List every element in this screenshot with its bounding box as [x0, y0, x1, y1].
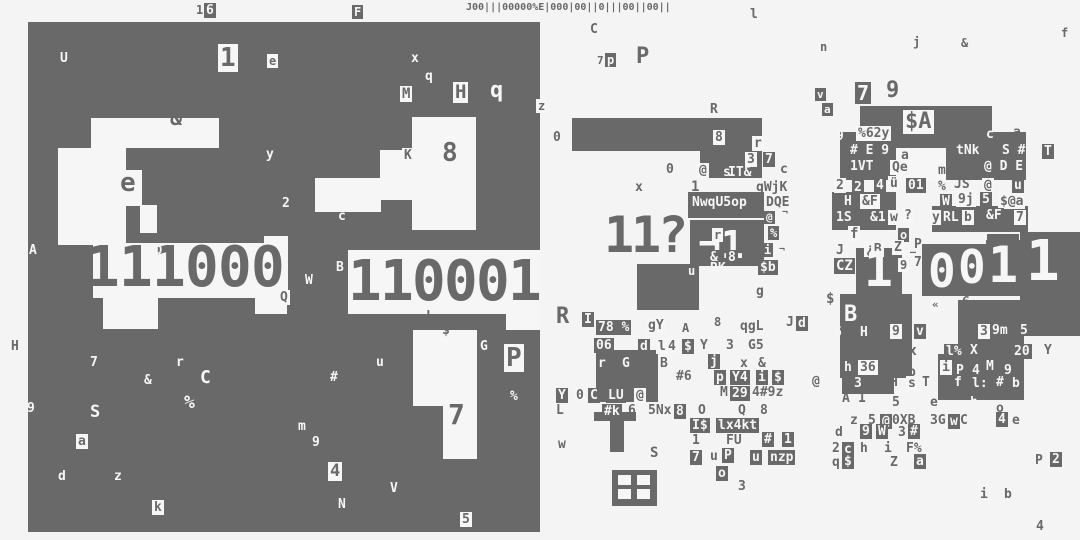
glyph: o	[902, 326, 910, 339]
glyph: 2	[852, 180, 864, 195]
glyph: #k	[602, 404, 622, 419]
glyph: W	[940, 194, 952, 209]
glyph: q	[490, 80, 503, 102]
glyph: 7	[446, 400, 467, 430]
glyph: i	[940, 360, 952, 375]
glyph: 2	[832, 442, 840, 455]
glyph: c	[338, 210, 346, 223]
glyph: B	[844, 304, 857, 326]
glyph: D	[155, 244, 162, 256]
window-pane	[637, 475, 650, 485]
glyph: y	[266, 148, 274, 161]
glyph: a	[1013, 126, 1021, 139]
glyph: e	[267, 54, 278, 68]
glyph: q	[425, 70, 433, 83]
big-digit: 1	[119, 240, 153, 296]
glyph: 9	[27, 402, 35, 415]
glyph: H	[890, 376, 898, 389]
glyph: C	[960, 414, 968, 427]
glyph: @ D E	[984, 160, 1023, 173]
glyph: 9j	[956, 192, 976, 207]
glyph: 78 %	[596, 320, 631, 335]
glyph: 3	[852, 376, 864, 391]
glyph: my	[938, 164, 954, 177]
big-digit: 0	[251, 240, 285, 296]
glyph: 7	[690, 450, 702, 465]
glyph: 36	[858, 360, 878, 375]
glyph: 7	[763, 152, 775, 167]
glyph: j	[708, 354, 720, 369]
glyph: 4	[874, 178, 886, 193]
glyph: R	[710, 103, 718, 116]
glyph: 4	[666, 339, 678, 354]
glyph: f	[1061, 27, 1068, 39]
glyph: $	[682, 339, 694, 354]
glyph: 1VT	[850, 160, 873, 173]
glyph: V	[390, 482, 398, 495]
glyph: CZ	[834, 258, 855, 274]
glyph: #	[996, 376, 1004, 389]
glyph: &	[758, 357, 766, 370]
glyph: $A	[903, 110, 934, 134]
glyph: Q	[278, 290, 290, 305]
glyph: h	[970, 396, 978, 409]
glyph: l:	[970, 376, 990, 391]
glyph: 9	[890, 324, 902, 339]
glyph: e	[120, 170, 136, 196]
glyph: 5	[892, 396, 900, 409]
glyph: 8	[726, 250, 738, 265]
glyph: i	[756, 370, 768, 385]
window-pane	[637, 489, 650, 499]
glyph: S	[650, 446, 658, 460]
glyph: W	[876, 424, 888, 439]
glyph: 3	[898, 426, 906, 439]
big-digit: 1	[604, 210, 634, 260]
glyph: S #	[1002, 144, 1025, 157]
glyph: G	[622, 357, 630, 370]
glyph: 4	[1036, 520, 1044, 533]
glyph: RK	[710, 262, 726, 275]
glyph: r	[598, 357, 606, 370]
glyph: O	[698, 404, 706, 417]
glyph: 0	[553, 131, 561, 144]
glyph: 2	[1050, 452, 1062, 467]
paper-blob	[91, 118, 219, 148]
glyph: $	[772, 370, 784, 385]
glyph: %	[938, 180, 946, 193]
glyph: I	[582, 312, 594, 327]
glyph: N	[338, 498, 346, 511]
glyph: 1	[218, 44, 238, 72]
glyph: p	[714, 370, 726, 385]
glyph: a	[76, 434, 88, 449]
ink-block	[572, 118, 700, 151]
glyph: 5	[980, 192, 992, 207]
big-digit: 0	[218, 240, 252, 296]
glyph: Q	[738, 404, 746, 417]
glyph: J	[786, 316, 794, 329]
glyph: Y	[1044, 344, 1052, 357]
glyph: gWjK	[756, 181, 787, 194]
glyph: ü	[888, 176, 900, 191]
glyph: Y	[700, 339, 708, 352]
glyph: 9	[312, 436, 320, 449]
glyph: 7	[1014, 210, 1026, 225]
glyph: L	[426, 310, 434, 323]
glyph: u	[710, 450, 718, 463]
glyph: 5	[1020, 324, 1028, 337]
glyph: 6	[834, 326, 842, 339]
glyph: a	[822, 103, 833, 116]
glyph: u	[750, 450, 762, 465]
glyph: 1	[864, 246, 893, 294]
glyph: z	[114, 470, 122, 483]
glyph: b	[962, 210, 974, 225]
glyph: 01	[906, 178, 926, 193]
glyph: K	[402, 148, 414, 163]
glyph: x	[411, 52, 419, 65]
glyph: 6	[204, 3, 216, 18]
big-digit: 1	[380, 254, 414, 310]
glyph: b	[1004, 488, 1012, 501]
glyph: NwqU5op	[692, 196, 747, 209]
glyph: Qe	[890, 160, 910, 175]
glyph: F	[352, 5, 363, 19]
big-digit: ?	[658, 210, 688, 260]
glyph: 1	[858, 392, 866, 405]
glyph: 6	[628, 404, 636, 417]
glyph: %	[768, 226, 779, 240]
glyph: 3	[726, 339, 734, 352]
paper-blob	[412, 117, 476, 230]
glitch-art-canvas: 11100011000111?16FJ00|||00000%E|000|00||…	[0, 0, 1080, 540]
glyph: 0	[928, 248, 956, 294]
glyph: 1	[692, 434, 700, 447]
glyph: B	[336, 261, 344, 274]
glyph: 9	[836, 130, 844, 143]
glyph: 1	[691, 180, 699, 194]
glyph: f	[954, 376, 962, 389]
glyph: IT&	[728, 166, 751, 179]
glyph: r	[176, 356, 184, 369]
glyph: e	[1012, 414, 1020, 427]
glyph: $x	[900, 344, 917, 358]
glyph: 1	[988, 240, 1018, 290]
glyph: w	[948, 414, 960, 429]
glyph: c	[986, 128, 994, 141]
glyph: 1S	[834, 210, 854, 225]
paper-blob	[315, 178, 381, 212]
glyph: 7	[855, 82, 871, 104]
glyph: &	[961, 37, 968, 49]
glyph: x	[635, 181, 643, 194]
glyph: @	[697, 163, 709, 178]
glyph: f	[848, 226, 860, 242]
glyph: 06	[594, 338, 614, 353]
glyph: B	[660, 357, 668, 370]
glyph: ¬	[782, 208, 788, 218]
paper-blob	[103, 297, 158, 329]
big-digit: 0	[185, 240, 219, 296]
glyph: $	[826, 292, 834, 306]
glyph: tNk	[956, 144, 979, 157]
glyph: &1	[868, 210, 888, 225]
glyph: J	[836, 244, 844, 257]
glyph: i	[762, 243, 773, 257]
big-digit: 1	[86, 240, 120, 296]
glyph: @	[810, 374, 822, 389]
glyph: @	[764, 211, 775, 224]
glyph: u	[376, 356, 384, 369]
window-pane	[618, 475, 631, 485]
glyph: ¬	[779, 245, 785, 255]
glyph: 8	[760, 404, 768, 417]
big-digit: 0	[444, 254, 478, 310]
glyph: c	[780, 163, 788, 176]
glyph: 8	[674, 404, 686, 419]
glyph: #6	[676, 370, 692, 383]
glyph: LU	[606, 388, 626, 403]
glyph: 2	[834, 178, 846, 193]
glyph: n	[820, 41, 827, 53]
glyph: 3	[978, 324, 990, 339]
glyph: %	[510, 390, 518, 403]
window-icon	[612, 470, 657, 506]
glyph: P	[722, 448, 734, 463]
glyph: 5	[460, 512, 472, 527]
glyph: C	[200, 369, 211, 387]
glyph: ?	[902, 208, 914, 223]
glyph: H	[842, 194, 854, 209]
glyph: l	[750, 8, 758, 21]
glyph: U	[60, 52, 68, 65]
glyph: &F	[984, 208, 1004, 223]
glyph: G	[480, 340, 488, 353]
glyph: S	[90, 404, 100, 421]
glyph: 2	[282, 197, 290, 210]
glyph: j	[913, 36, 920, 48]
glyph: $	[442, 324, 450, 337]
glyph: Z	[892, 240, 904, 255]
glyph: J00|||00000%E|000|00||0|||00||00||	[466, 3, 671, 13]
glyph: Y	[556, 388, 568, 403]
glyph: FU	[726, 434, 742, 447]
glyph: s	[906, 376, 918, 391]
glyph: v	[815, 88, 826, 101]
glyph: 9	[898, 258, 909, 272]
glyph: G5	[748, 339, 764, 352]
glyph: k	[152, 500, 164, 515]
glyph: d	[796, 316, 808, 331]
glyph: r	[752, 136, 764, 151]
glyph: gY	[646, 318, 666, 333]
glyph: 7	[90, 356, 98, 369]
glyph: 5Nx	[648, 404, 671, 417]
glyph: A	[842, 392, 850, 405]
big-digit: 1	[348, 254, 382, 310]
glyph: e	[930, 396, 938, 409]
glyph: 0	[666, 163, 674, 176]
glyph: 9m	[992, 324, 1008, 337]
glyph: u	[686, 264, 697, 278]
glyph: $b	[758, 260, 778, 275]
glyph: P	[504, 344, 524, 372]
glyph: 20	[1012, 344, 1032, 359]
glyph: P	[1035, 454, 1043, 467]
glyph: 8	[713, 130, 725, 145]
glyph: 1	[1026, 234, 1060, 290]
glyph: JS	[954, 178, 970, 191]
glyph: R	[556, 306, 569, 328]
glyph: r	[712, 228, 723, 242]
glyph: #	[762, 432, 774, 447]
glyph: i	[980, 488, 988, 501]
glyph: %62y	[856, 126, 891, 141]
glyph: g	[756, 285, 764, 298]
glyph: 9	[860, 424, 872, 439]
glyph: z	[536, 99, 547, 113]
glyph: d	[638, 339, 650, 354]
glyph: w	[558, 438, 566, 451]
glyph: nzp	[768, 450, 795, 465]
glyph: M	[720, 386, 728, 399]
glyph: X	[970, 344, 978, 357]
glyph: P	[636, 46, 649, 68]
glyph: T	[922, 376, 930, 389]
glyph: M	[400, 86, 412, 102]
glyph: A	[29, 244, 37, 257]
glyph: T	[1042, 144, 1054, 159]
glyph: 7	[597, 55, 604, 66]
glyph: h	[842, 360, 854, 375]
glyph: q	[832, 456, 840, 469]
glyph: 0	[958, 244, 986, 290]
paper-blob	[413, 330, 477, 406]
glyph: 0	[574, 388, 586, 403]
glyph: x	[740, 357, 748, 370]
glyph: RL	[941, 210, 961, 225]
glyph: &	[144, 374, 152, 387]
glyph: M	[986, 360, 994, 373]
glyph: 8	[714, 316, 721, 328]
glyph: C	[588, 388, 600, 403]
glyph: z	[850, 414, 858, 427]
glyph: h	[860, 442, 868, 455]
glyph: 9	[886, 80, 899, 102]
glyph: $@a	[998, 194, 1025, 209]
glyph: 4	[996, 412, 1008, 427]
glyph: &F	[860, 194, 880, 209]
glyph: d	[835, 426, 843, 439]
glyph: 4	[328, 462, 342, 481]
glyph: %	[184, 394, 195, 412]
glyph: 6	[962, 296, 970, 309]
glyph: $	[842, 454, 854, 469]
glyph: 3G	[930, 414, 946, 427]
glyph: d	[58, 470, 66, 483]
glyph: # E 9	[850, 144, 889, 157]
glyph: H	[453, 82, 468, 103]
big-digit: 1	[508, 254, 542, 310]
glyph: L	[556, 404, 564, 417]
glyph: @	[634, 388, 646, 403]
glyph: H	[11, 340, 19, 353]
glyph: C	[590, 23, 598, 36]
glyph: 3	[738, 480, 746, 493]
glyph: I$	[690, 418, 710, 433]
glyph: 29	[730, 386, 750, 401]
glyph: l%	[944, 344, 964, 359]
glyph: a	[914, 454, 926, 469]
glyph: &	[170, 108, 182, 128]
glyph: 7	[914, 256, 922, 269]
glyph: 8	[442, 140, 458, 166]
glyph: o	[716, 466, 728, 481]
glyph: v	[914, 324, 926, 339]
glyph: b	[1010, 376, 1022, 391]
glyph: Y4	[730, 370, 750, 385]
paper-blob	[140, 205, 157, 233]
glyph: 1	[782, 432, 794, 447]
big-digit: 1	[631, 210, 661, 260]
big-digit: 0	[412, 254, 446, 310]
glyph: Z	[890, 456, 898, 469]
ink-block	[1023, 288, 1080, 336]
glyph: i	[884, 442, 892, 455]
glyph: 1	[196, 4, 203, 16]
big-digit: 0	[476, 254, 510, 310]
glyph: lx4kt	[716, 418, 759, 433]
glyph: u	[1012, 178, 1024, 193]
glyph: w	[888, 210, 900, 225]
glyph: «	[930, 298, 941, 311]
glyph: #	[908, 424, 920, 439]
window-pane	[618, 489, 631, 499]
glyph: m	[298, 420, 306, 433]
glyph: H	[860, 326, 868, 339]
glyph: qgL	[740, 320, 763, 333]
glyph: @	[982, 178, 994, 193]
glyph: p	[605, 53, 616, 67]
glyph: A	[682, 322, 689, 334]
glyph: #	[330, 371, 338, 384]
glyph: W	[305, 274, 313, 287]
glyph: 4#9z	[752, 386, 783, 399]
